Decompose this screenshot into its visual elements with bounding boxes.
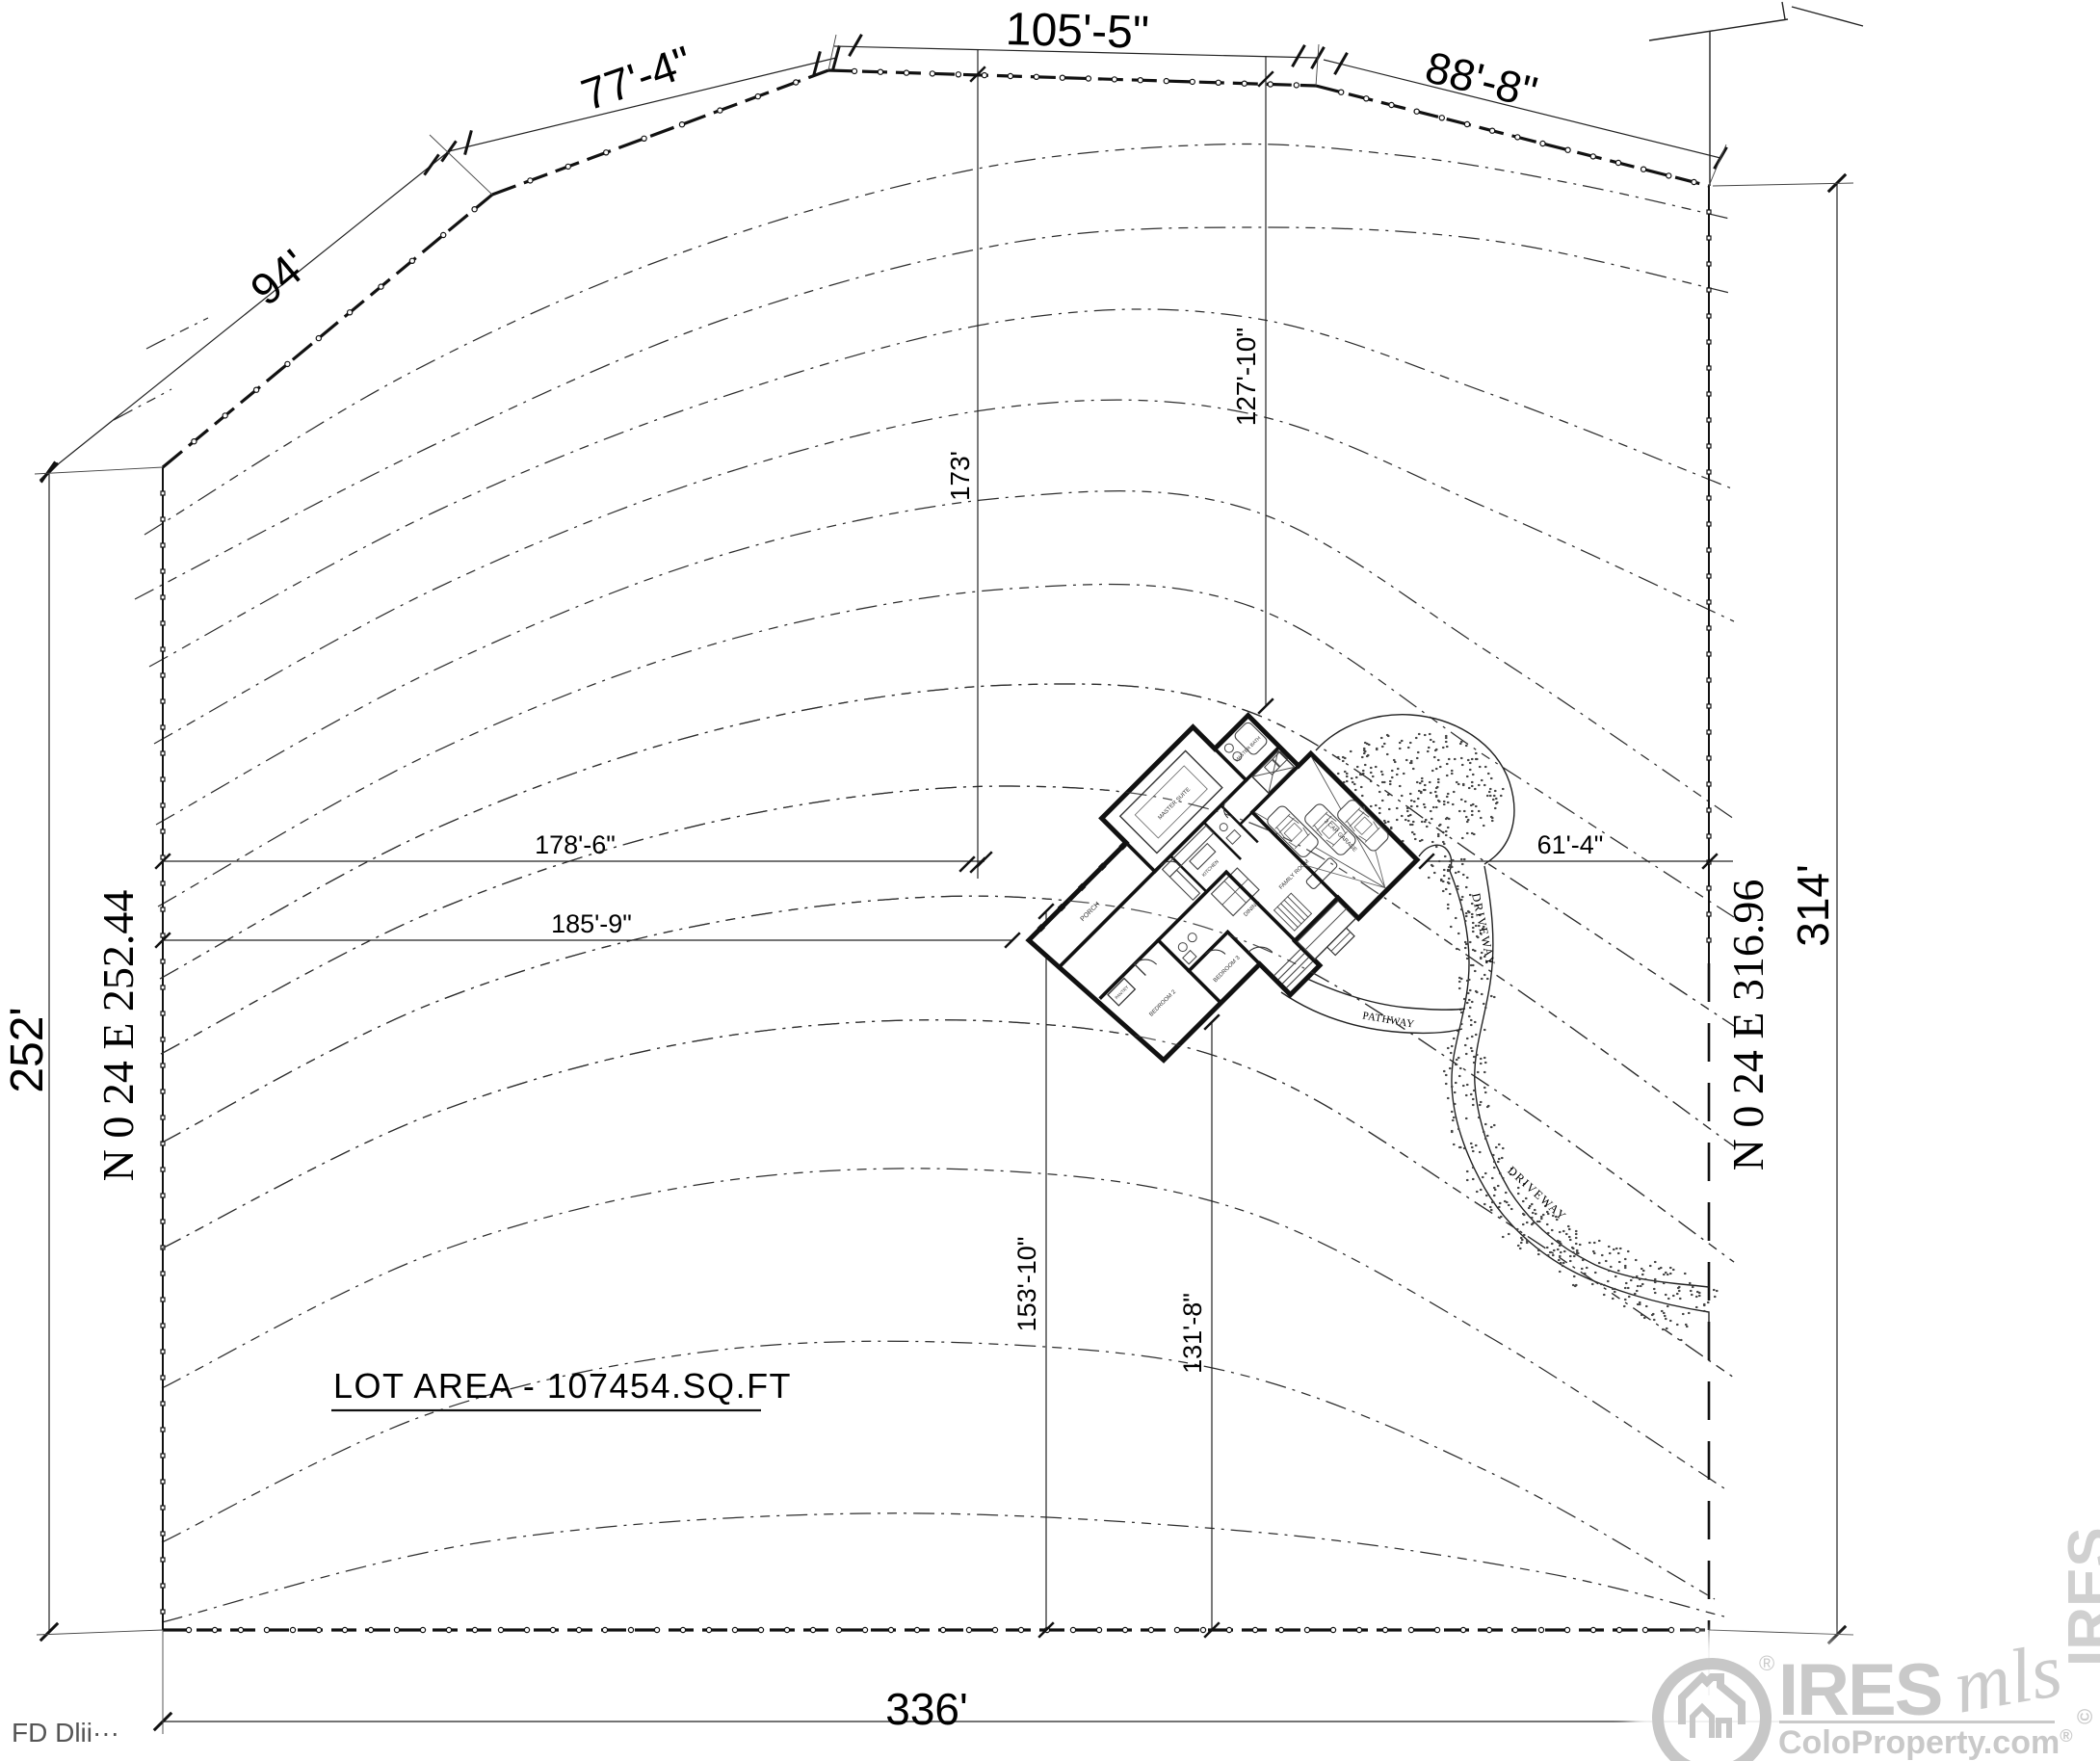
svg-text:252': 252' bbox=[2, 1007, 53, 1092]
svg-text:336': 336' bbox=[885, 1684, 968, 1734]
svg-text:153'-10": 153'-10" bbox=[1012, 1237, 1041, 1332]
svg-text:©: © bbox=[2073, 1709, 2097, 1724]
svg-text:FD Dlii···: FD Dlii··· bbox=[12, 1718, 119, 1748]
svg-text:178'-6": 178'-6" bbox=[535, 830, 616, 859]
svg-text:IRES: IRES bbox=[2057, 1527, 2100, 1667]
svg-text:®: ® bbox=[1759, 1651, 1774, 1675]
svg-text:LOT AREA - 107454.SQ.FT: LOT AREA - 107454.SQ.FT bbox=[333, 1366, 792, 1406]
svg-text:IRES: IRES bbox=[1778, 1649, 1941, 1731]
svg-text:314': 314' bbox=[1788, 864, 1838, 947]
svg-text:185'-9": 185'-9" bbox=[551, 909, 632, 938]
svg-text:ColoProperty.com®: ColoProperty.com® bbox=[1778, 1724, 2072, 1761]
svg-text:N 0 24 E 316.96: N 0 24 E 316.96 bbox=[1723, 880, 1772, 1171]
svg-text:131'-8": 131'-8" bbox=[1178, 1293, 1207, 1374]
svg-text:127'-10": 127'-10" bbox=[1231, 328, 1261, 426]
svg-text:105'-5": 105'-5" bbox=[1005, 4, 1149, 59]
svg-text:61'-4": 61'-4" bbox=[1537, 830, 1604, 859]
svg-text:173': 173' bbox=[945, 451, 975, 501]
svg-text:N 0 24 E 252.44: N 0 24 E 252.44 bbox=[93, 890, 143, 1182]
